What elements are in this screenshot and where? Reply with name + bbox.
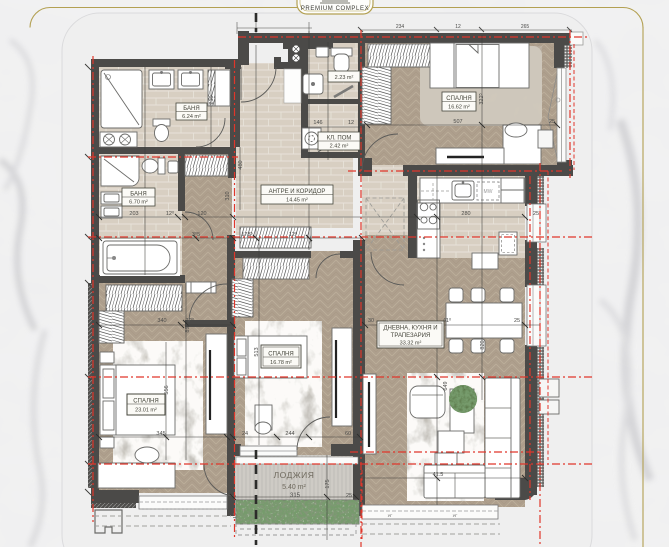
svg-text:СПАЛНЯ: СПАЛНЯ <box>446 96 471 102</box>
svg-text:ДНЕВНА, КУХНЯ И: ДНЕВНА, КУХНЯ И <box>383 326 437 332</box>
svg-text:649: 649 <box>443 381 449 390</box>
svg-text:УГ: УГ <box>453 513 459 518</box>
svg-text:210: 210 <box>209 95 215 104</box>
svg-text:25: 25 <box>549 119 555 125</box>
svg-text:345: 345 <box>156 431 165 437</box>
svg-text:БАНЯ: БАНЯ <box>183 106 199 112</box>
svg-text:480: 480 <box>238 160 244 169</box>
svg-text:PREMIUM COMPLEX: PREMIUM COMPLEX <box>301 6 369 12</box>
svg-text:2.23 m²: 2.23 m² <box>335 75 354 81</box>
svg-text:6.24 m²: 6.24 m² <box>182 114 201 120</box>
svg-text:КЛ. ПОМ: КЛ. ПОМ <box>327 136 352 142</box>
svg-text:БАНЯ: БАНЯ <box>130 192 146 198</box>
svg-text:2.42 m²: 2.42 m² <box>330 144 349 150</box>
svg-text:898: 898 <box>185 323 191 332</box>
svg-text:513: 513 <box>254 347 260 356</box>
svg-text:33.32 m²: 33.32 m² <box>400 341 422 347</box>
svg-text:310: 310 <box>225 191 231 200</box>
svg-text:MW: MW <box>484 189 493 195</box>
svg-text:6.70 m²: 6.70 m² <box>129 200 148 206</box>
svg-text:23.01 m²: 23.01 m² <box>135 408 157 414</box>
svg-text:340: 340 <box>157 318 166 324</box>
svg-text:41.5: 41.5 <box>433 472 444 478</box>
svg-text:25: 25 <box>514 318 520 324</box>
svg-text:14.45 m²: 14.45 m² <box>286 198 308 204</box>
svg-text:60: 60 <box>345 431 351 437</box>
svg-text:175: 175 <box>325 479 331 488</box>
svg-text:556: 556 <box>164 385 170 394</box>
svg-text:СПАЛНЯ: СПАЛНЯ <box>133 399 158 405</box>
svg-text:12: 12 <box>455 24 461 30</box>
svg-text:24: 24 <box>242 431 248 437</box>
svg-text:265: 265 <box>521 24 530 30</box>
svg-text:315: 315 <box>290 493 301 499</box>
svg-text:820: 820 <box>480 340 486 349</box>
svg-text:16.78 m²: 16.78 m² <box>270 360 292 366</box>
svg-text:203: 203 <box>129 211 138 217</box>
svg-text:ЛОДЖИЯ: ЛОДЖИЯ <box>274 470 315 480</box>
svg-text:АНТРЕ И КОРИДОР: АНТРЕ И КОРИДОР <box>269 189 326 195</box>
svg-text:25: 25 <box>346 493 352 499</box>
svg-text:12: 12 <box>348 120 354 126</box>
svg-text:507: 507 <box>453 119 462 125</box>
svg-text:244: 244 <box>285 431 294 437</box>
svg-text:146: 146 <box>313 120 322 126</box>
svg-text:25: 25 <box>533 211 539 217</box>
svg-text:УГ: УГ <box>388 513 394 518</box>
svg-text:280: 280 <box>461 211 470 217</box>
svg-text:30: 30 <box>368 318 374 324</box>
svg-text:СПАЛНЯ: СПАЛНЯ <box>268 352 293 358</box>
svg-text:234: 234 <box>396 24 405 30</box>
svg-text:5.40 m²: 5.40 m² <box>282 484 306 491</box>
svg-text:16.62 m²: 16.62 m² <box>448 105 470 111</box>
svg-text:120: 120 <box>197 211 206 217</box>
svg-text:ТРАПЕЗАРИЯ: ТРАПЕЗАРИЯ <box>391 333 431 339</box>
